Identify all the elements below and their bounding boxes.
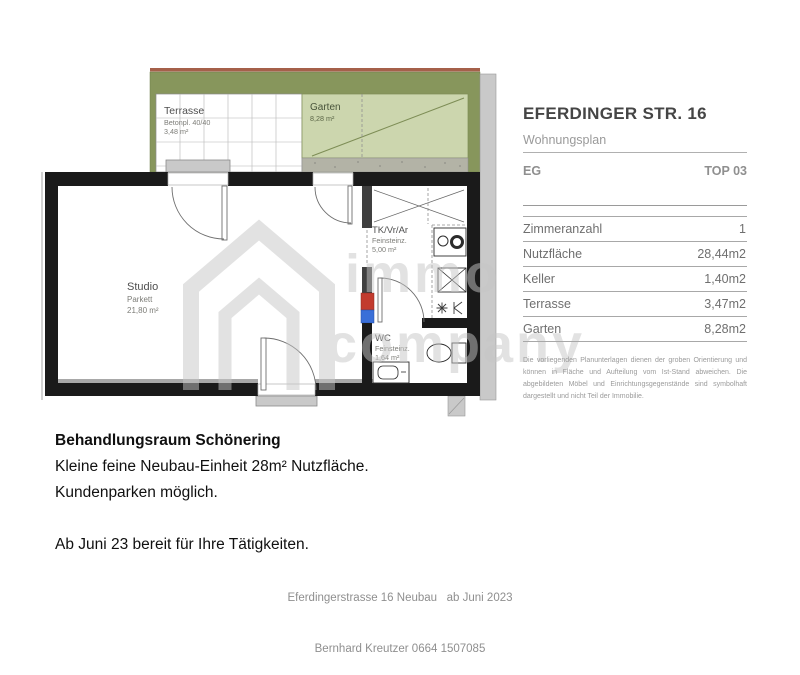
- row-value: 1: [739, 222, 746, 236]
- row-label: Zimmeranzahl: [523, 222, 602, 236]
- row-value: 28,44m2: [697, 247, 746, 261]
- vorraum-area-value: 5,00 m²: [372, 245, 397, 254]
- studio-floor: Parkett: [127, 295, 153, 304]
- wc-sink-icon: [373, 362, 409, 383]
- description-line: Ab Juni 23 bereit für Ihre Tätigkeiten.: [55, 532, 369, 558]
- studio-area-value: 21,80 m²: [127, 306, 159, 315]
- gravel-strip: [302, 158, 468, 172]
- floor-unit-row: EG TOP 03: [523, 164, 747, 178]
- plan-disclaimer: Die vorliegenden Planunterlagen dienen d…: [523, 355, 747, 403]
- row-label: Garten: [523, 322, 561, 336]
- vorraum-label: TK/Vr/Ar: [372, 225, 408, 236]
- appliance-connection-icon: [437, 302, 463, 314]
- plumbing-hot-riser: [361, 293, 374, 310]
- floor-plan: Terrasse Betonpl. 40/40 3,48 m² Garten 8…: [30, 50, 510, 425]
- kitchen-zone: TK/Vr/Ar Feinsteinz. 5,00 m²: [372, 188, 467, 318]
- terrace-door: [172, 186, 227, 240]
- footer: Eferdingerstrasse 16 Neubau ab Juni 2023…: [0, 556, 800, 675]
- terrace-detail: Betonpl. 40/40: [164, 118, 210, 127]
- footer-contact: Bernhard Kreutzer 0664 1507085: [0, 641, 800, 658]
- table-row: Garten 8,28m2: [523, 316, 747, 342]
- garden-label: Garten: [310, 102, 341, 113]
- neighbour-stub: [448, 396, 465, 416]
- row-label: Terrasse: [523, 297, 571, 311]
- table-row: Zimmeranzahl 1: [523, 216, 747, 241]
- garden-door: [315, 186, 352, 224]
- property-description: Behandlungsraum Schönering Kleine feine …: [55, 428, 369, 558]
- wc-floor: Feinsteinz.: [375, 344, 410, 353]
- description-line: Kundenparken möglich.: [55, 480, 369, 506]
- neighbour-strip: [480, 74, 496, 400]
- wc-label: WC: [375, 333, 391, 344]
- toilet-icon: [427, 343, 466, 363]
- row-label: Nutzfläche: [523, 247, 582, 261]
- row-value: 3,47m2: [704, 297, 746, 311]
- table-row: Terrasse 3,47m2: [523, 291, 747, 316]
- wc-divider-wall: [422, 318, 467, 328]
- studio-label: Studio: [127, 281, 158, 293]
- terrace-area-value: 3,48 m²: [164, 127, 189, 136]
- wc-area-value: 1,64 m²: [375, 353, 400, 362]
- page-title: EFERDINGER STR. 16: [523, 104, 747, 124]
- door-openings: [168, 173, 353, 395]
- table-row: Keller 1,40m2: [523, 266, 747, 291]
- cooktop-icon: [434, 228, 466, 256]
- garden-area: Garten 8,28 m²: [302, 94, 468, 172]
- kitchen-sink-icon: [438, 268, 466, 292]
- table-row: Nutzfläche 28,44m2: [523, 241, 747, 266]
- row-value: 1,40m2: [704, 272, 746, 286]
- row-label: Keller: [523, 272, 555, 286]
- entrance-step: [256, 396, 317, 406]
- garden-area-value: 8,28 m²: [310, 114, 335, 123]
- wc-zone: WC Feinsteinz. 1,64 m²: [373, 333, 466, 383]
- studio-zone: Studio Parkett 21,80 m²: [127, 281, 159, 315]
- floor-label: EG: [523, 164, 541, 178]
- unit-label: TOP 03: [704, 164, 747, 178]
- wc-door: [378, 278, 424, 322]
- entrance-door: [261, 338, 316, 390]
- description-spacer: [55, 506, 369, 532]
- terrace-label: Terrasse: [164, 105, 204, 117]
- section-divider: [523, 205, 747, 206]
- footer-address: Eferdingerstrasse 16 Neubau ab Juni 2023: [0, 590, 800, 607]
- info-panel: EFERDINGER STR. 16 Wohnungsplan EG TOP 0…: [523, 104, 747, 403]
- description-title: Behandlungsraum Schönering: [55, 428, 369, 454]
- area-table: Zimmeranzahl 1 Nutzfläche 28,44m2 Keller…: [523, 216, 747, 342]
- description-line: Kleine feine Neubau-Einheit 28m² Nutzflä…: [55, 454, 369, 480]
- vorraum-floor: Feinsteinz.: [372, 236, 407, 245]
- plan-subtitle: Wohnungsplan: [523, 133, 747, 153]
- row-value: 8,28m2: [704, 322, 746, 336]
- property-boundary-line: [150, 68, 480, 72]
- terrace-step: [166, 160, 230, 172]
- plumbing-cold-riser: [361, 310, 374, 323]
